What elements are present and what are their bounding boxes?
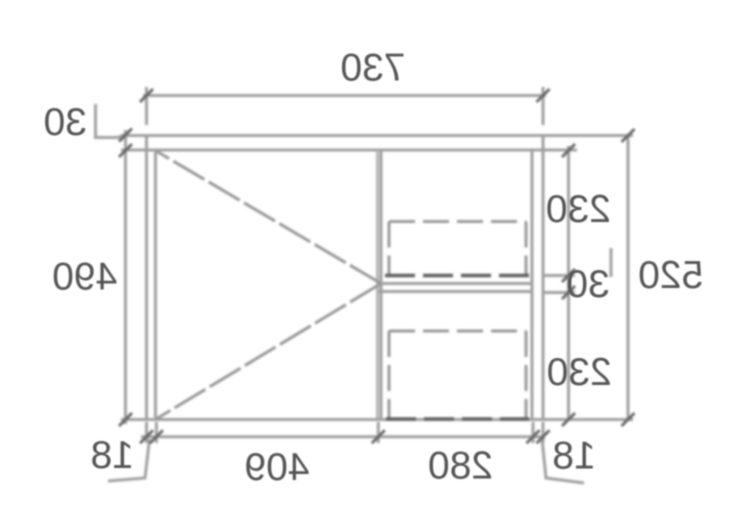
svg-text:520: 520: [638, 254, 703, 297]
svg-text:280: 280: [428, 445, 493, 488]
svg-text:230: 230: [546, 188, 611, 231]
svg-text:18: 18: [91, 434, 134, 477]
svg-text:409: 409: [244, 446, 309, 489]
svg-text:490: 490: [52, 256, 117, 299]
svg-text:18: 18: [552, 435, 595, 478]
svg-text:230: 230: [547, 351, 612, 394]
svg-text:730: 730: [340, 47, 405, 90]
svg-text:30: 30: [566, 263, 609, 306]
svg-text:30: 30: [44, 101, 87, 144]
